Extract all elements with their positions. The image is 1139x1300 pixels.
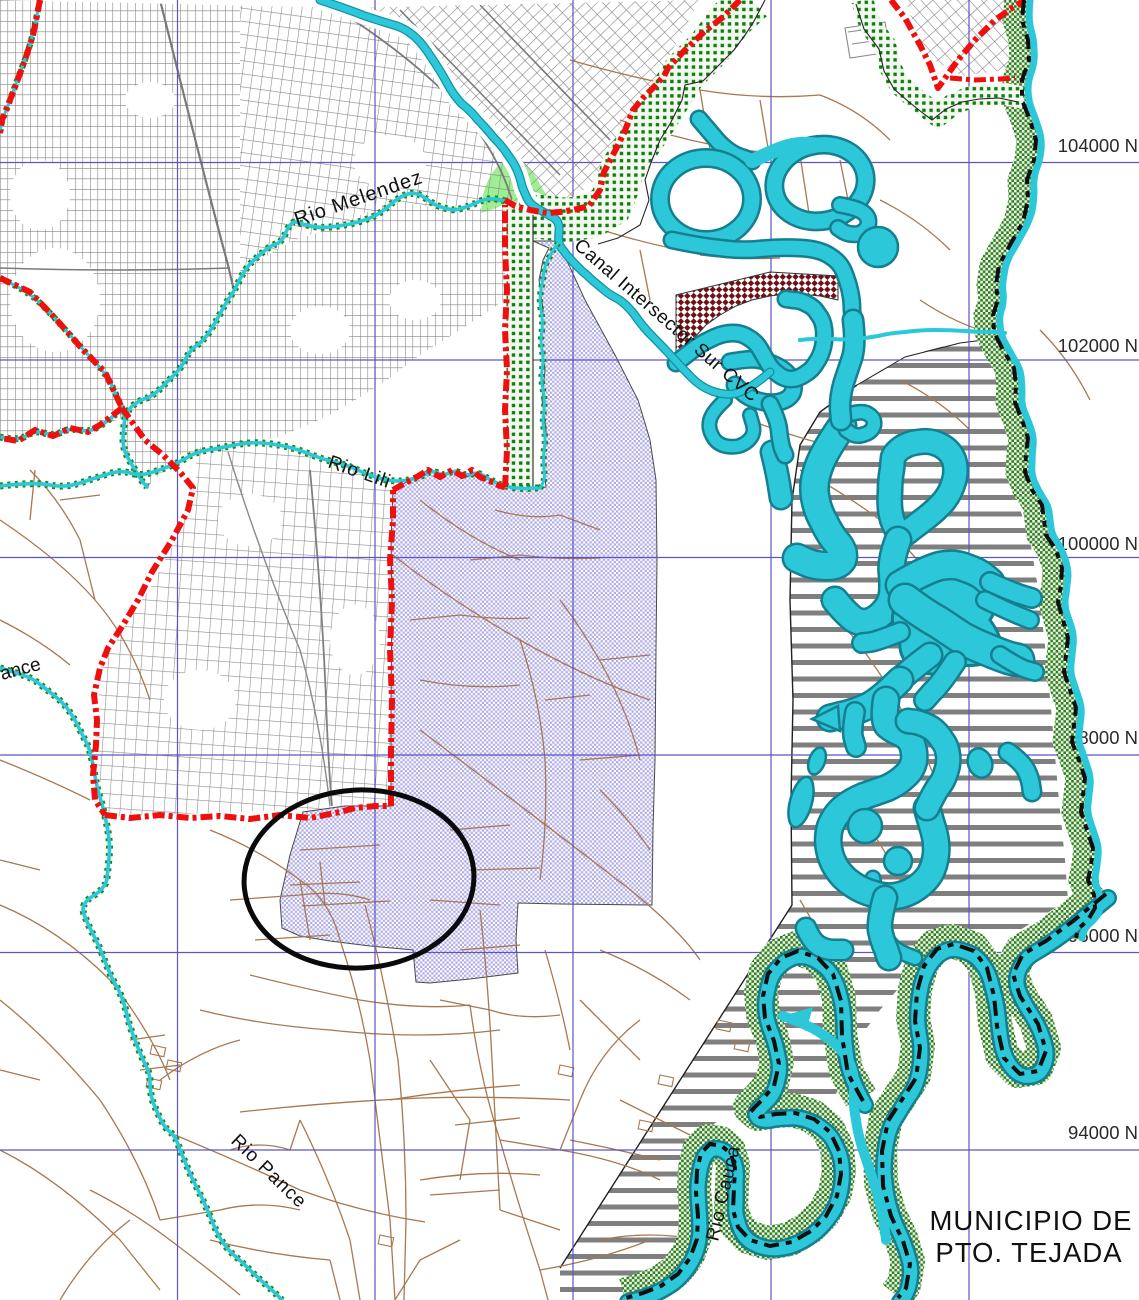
svg-text:102000 N: 102000 N <box>1058 335 1138 356</box>
svg-text:PTO. TEJADA: PTO. TEJADA <box>935 1237 1122 1268</box>
svg-text:104000 N: 104000 N <box>1058 135 1138 156</box>
svg-text:MUNICIPIO DE: MUNICIPIO DE <box>930 1205 1133 1236</box>
svg-text:94000 N: 94000 N <box>1068 1122 1138 1143</box>
svg-text:100000 N: 100000 N <box>1058 533 1138 554</box>
